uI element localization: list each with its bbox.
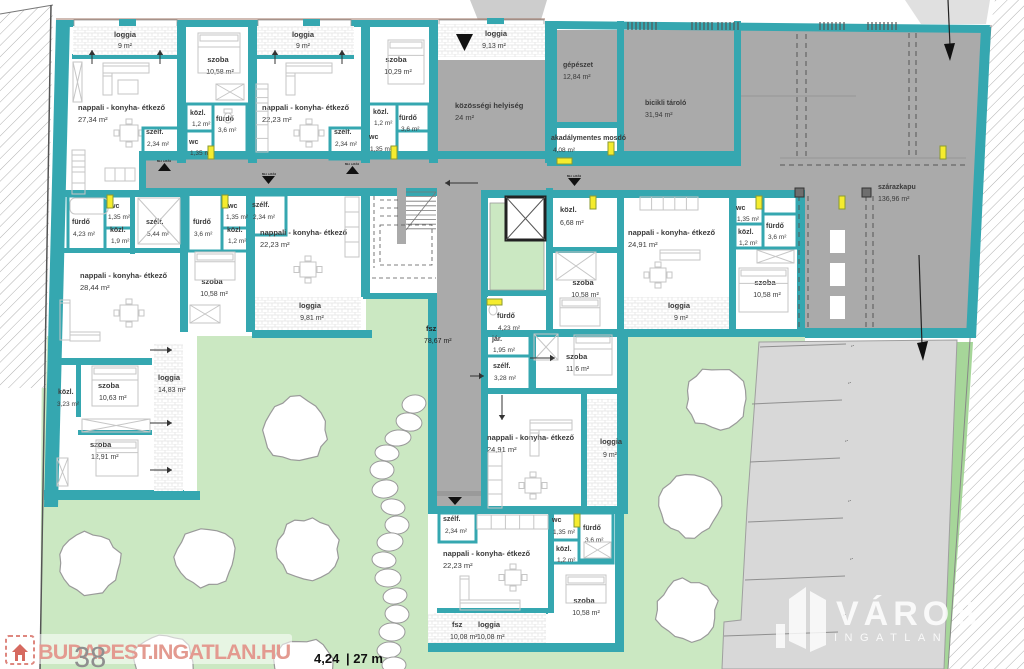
svg-text:4,23 m²: 4,23 m²	[73, 231, 96, 238]
svg-text:22,23 m²: 22,23 m²	[262, 115, 292, 124]
svg-text:1,2 m²: 1,2 m²	[374, 120, 393, 127]
svg-text:közl.: közl.	[556, 546, 572, 553]
svg-text:szárazkapu: szárazkapu	[878, 184, 916, 191]
svg-text:9,81 m²: 9,81 m²	[300, 315, 324, 322]
svg-text:fürdő: fürdő	[72, 219, 90, 226]
svg-text:9 m²: 9 m²	[674, 315, 689, 322]
svg-text:10,58 m²: 10,58 m²	[753, 292, 781, 299]
svg-text:1,2 m²: 1,2 m²	[739, 240, 758, 247]
svg-text:fürdő: fürdő	[193, 219, 211, 226]
svg-text:2,34 m²: 2,34 m²	[253, 214, 276, 221]
svg-text:1,9 m²: 1,9 m²	[111, 238, 130, 245]
svg-text:24 m²: 24 m²	[455, 113, 475, 122]
svg-text:1,35 m²: 1,35 m²	[737, 216, 760, 223]
svg-text:szoba: szoba	[201, 277, 223, 286]
svg-text:1,95 m²: 1,95 m²	[493, 347, 516, 354]
svg-text:közösségi helyiség: közösségi helyiség	[455, 101, 524, 110]
svg-text:10,63 m²: 10,63 m²	[99, 395, 127, 402]
svg-text:28,44 m²: 28,44 m²	[80, 283, 110, 292]
svg-text:1,2 m²: 1,2 m²	[228, 238, 247, 245]
svg-text:szoba: szoba	[573, 596, 595, 605]
svg-text:12,84 m²: 12,84 m²	[563, 74, 591, 81]
svg-text:loggia: loggia	[478, 620, 501, 629]
svg-text:szoba: szoba	[566, 352, 588, 361]
svg-text:wc: wc	[368, 134, 378, 141]
svg-text:nappali - konyha- étkező: nappali - konyha- étkező	[78, 103, 166, 112]
svg-text:wc: wc	[551, 517, 561, 524]
svg-text:22,23 m²: 22,23 m²	[443, 561, 473, 570]
svg-text:wc: wc	[227, 203, 237, 210]
svg-text:szoba: szoba	[98, 381, 120, 390]
svg-text:BEJ. LAKÁS: BEJ. LAKÁS	[157, 160, 172, 163]
svg-text:szélf.: szélf.	[493, 363, 511, 370]
svg-text:fürdő: fürdő	[399, 115, 417, 122]
svg-text:gépészet: gépészet	[563, 62, 594, 69]
svg-text:nappali - konyha- étkező: nappali - konyha- étkező	[628, 228, 716, 237]
svg-text:VÁROS: VÁROS	[836, 595, 982, 633]
svg-text:38: 38	[74, 642, 106, 669]
svg-text:12,91 m²: 12,91 m²	[91, 454, 119, 461]
svg-text:3,6 m²: 3,6 m²	[218, 127, 237, 134]
svg-text:fürdő: fürdő	[497, 313, 515, 320]
svg-text:fsz: fsz	[452, 620, 463, 629]
svg-text:loggia: loggia	[600, 437, 623, 446]
svg-text:szoba: szoba	[385, 55, 407, 64]
svg-text:bicikli tároló: bicikli tároló	[645, 100, 686, 107]
svg-text:2,34 m²: 2,34 m²	[335, 141, 358, 148]
svg-text:loggia: loggia	[114, 30, 137, 39]
svg-text:szélf.: szélf.	[334, 129, 352, 136]
svg-text:loggia: loggia	[299, 301, 322, 310]
svg-text:27,34 m²: 27,34 m²	[78, 115, 108, 124]
svg-text:10,58 m²: 10,58 m²	[572, 610, 600, 617]
svg-text:| 27 m: | 27 m	[346, 651, 383, 666]
svg-text:szélf.: szélf.	[443, 516, 461, 523]
svg-text:14,83 m²: 14,83 m²	[158, 387, 186, 394]
svg-text:136,96 m²: 136,96 m²	[878, 196, 910, 203]
svg-text:közl.: közl.	[738, 229, 754, 236]
svg-text:3,6 m²: 3,6 m²	[585, 537, 604, 544]
svg-text:78,67 m²: 78,67 m²	[424, 338, 452, 345]
svg-text:3,28 m²: 3,28 m²	[494, 375, 517, 382]
svg-text:akadálymentes mosdó: akadálymentes mosdó	[551, 135, 626, 142]
svg-text:fürdő: fürdő	[583, 525, 601, 532]
svg-text:nappali - konyha- étkező: nappali - konyha- étkező	[260, 228, 348, 237]
svg-text:24,91 m²: 24,91 m²	[628, 240, 658, 249]
svg-text:9 m²: 9 m²	[296, 43, 311, 50]
svg-text:szoba: szoba	[207, 55, 229, 64]
svg-text:BEJ. LAKÁS: BEJ. LAKÁS	[262, 173, 277, 176]
svg-text:10,08 m²: 10,08 m²	[477, 634, 505, 641]
svg-text:jár.: jár.	[491, 336, 502, 343]
svg-text:nappali - konyha- étkező: nappali - konyha- étkező	[80, 271, 168, 280]
svg-text:31,94 m²: 31,94 m²	[645, 112, 673, 119]
svg-text:nappali - konyha- étkező: nappali - konyha- étkező	[443, 549, 531, 558]
svg-text:2,34 m²: 2,34 m²	[147, 141, 170, 148]
svg-text:loggia: loggia	[668, 301, 691, 310]
svg-text:BEJ. LAKÁS: BEJ. LAKÁS	[345, 163, 360, 166]
svg-text:nappali - konyha- étkező: nappali - konyha- étkező	[262, 103, 350, 112]
svg-text:loggia: loggia	[292, 30, 315, 39]
svg-text:szoba: szoba	[572, 278, 594, 287]
svg-text:2,34 m²: 2,34 m²	[445, 528, 468, 535]
svg-text:szoba: szoba	[754, 278, 776, 287]
svg-text:szélf.: szélf.	[146, 129, 164, 136]
svg-text:közl.: közl.	[373, 109, 389, 116]
svg-text:4,24: 4,24	[314, 651, 340, 666]
svg-text:1,35 m²: 1,35 m²	[108, 214, 131, 221]
svg-text:3,6 m²: 3,6 m²	[194, 231, 213, 238]
svg-text:loggia: loggia	[485, 29, 508, 38]
svg-text:közl.: közl.	[110, 227, 126, 234]
svg-text:loggia: loggia	[158, 373, 181, 382]
svg-text:5,44 m²: 5,44 m²	[147, 231, 170, 238]
svg-text:szélf.: szélf.	[252, 202, 270, 209]
svg-text:1,2 m²: 1,2 m²	[192, 121, 211, 128]
svg-text:közl.: közl.	[58, 389, 74, 396]
svg-text:1,35 m²: 1,35 m²	[226, 214, 249, 221]
svg-text:közl.: közl.	[227, 227, 243, 234]
svg-text:4,08 m²: 4,08 m²	[553, 147, 576, 154]
svg-text:9 m²: 9 m²	[603, 452, 618, 459]
svg-text:nappali - konyha- étkező: nappali - konyha- étkező	[487, 433, 575, 442]
svg-text:INGATLAN: INGATLAN	[834, 632, 948, 644]
svg-text:11,6 m²: 11,6 m²	[566, 366, 590, 373]
svg-text:1,35 m²: 1,35 m²	[553, 529, 576, 536]
svg-text:wc: wc	[735, 205, 745, 212]
svg-text:fürdő: fürdő	[766, 223, 784, 230]
svg-text:közl.: közl.	[190, 110, 206, 117]
svg-text:6,68 m²: 6,68 m²	[560, 220, 584, 227]
svg-text:1,2 m²: 1,2 m²	[557, 557, 576, 564]
svg-text:wc: wc	[188, 139, 198, 146]
svg-text:fsz: fsz	[426, 324, 437, 333]
svg-text:3,23 m²: 3,23 m²	[57, 401, 80, 408]
svg-text:BEJ. LAKÁS: BEJ. LAKÁS	[567, 175, 582, 178]
svg-text:3,6 m²: 3,6 m²	[401, 126, 420, 133]
svg-text:4,23 m²: 4,23 m²	[498, 325, 521, 332]
svg-text:1,35 m²: 1,35 m²	[370, 146, 393, 153]
svg-text:9,13 m²: 9,13 m²	[482, 43, 506, 50]
svg-text:10,58 m²: 10,58 m²	[200, 291, 228, 298]
svg-text:3,6 m²: 3,6 m²	[768, 234, 787, 241]
svg-text:22,23 m²: 22,23 m²	[260, 240, 290, 249]
svg-text:közl.: közl.	[560, 205, 577, 214]
svg-text:10,08 m²: 10,08 m²	[450, 634, 478, 641]
svg-text:9 m²: 9 m²	[118, 43, 133, 50]
